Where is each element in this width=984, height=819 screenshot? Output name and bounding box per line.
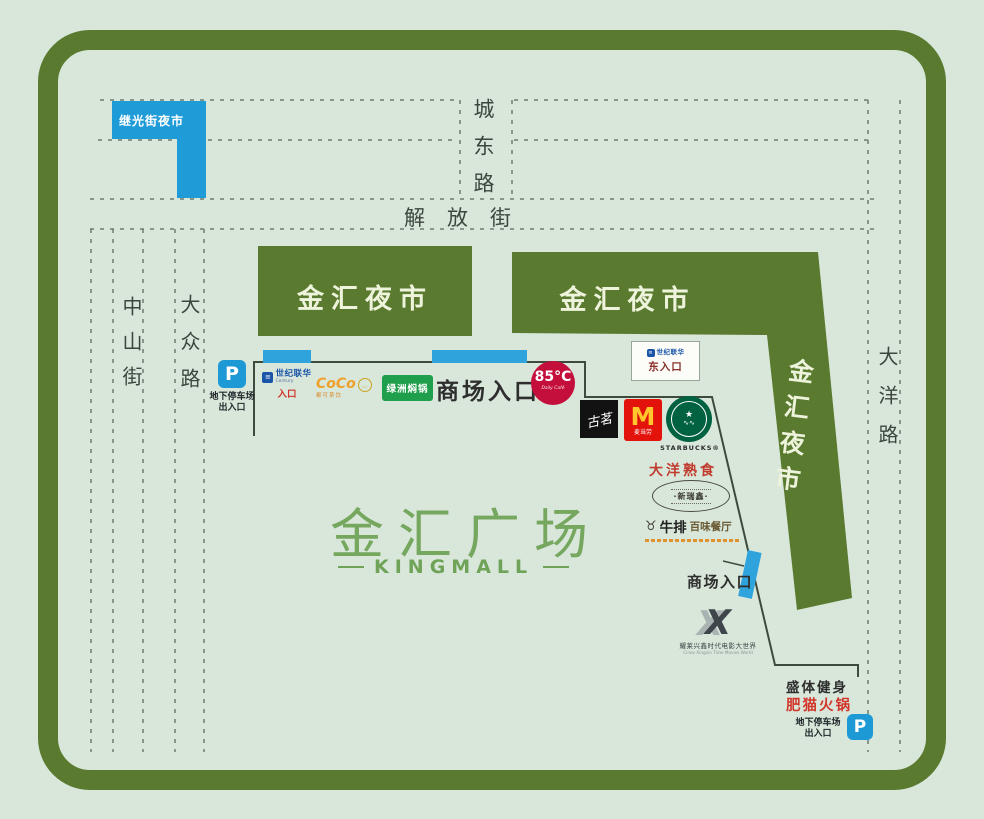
cinema-logo: X 耀莱兴鑫时代电影大世界 Cinex Xingxin Time Movies … (668, 606, 768, 655)
road-jiefang: 解放街 (404, 202, 533, 232)
hotpot-label: 肥猫火锅 (786, 694, 852, 715)
coco-mascot-icon: ◡ (358, 378, 372, 392)
parking-icon-west: P (218, 360, 246, 388)
parking-label-west: 地下停车场出入口 (198, 392, 266, 413)
mall-entrance-right-label: 商场入口 (687, 571, 753, 592)
fitness-label: 盛体健身 (786, 676, 848, 696)
road-dayang: 大洋路 (873, 346, 902, 463)
parking-label-south: 地下停车场出入口 (792, 718, 844, 739)
century-lianhua-icon: ≡ (262, 372, 273, 383)
east-box-century-icon: ≡ (647, 349, 655, 357)
road-zhongshan: 中山街 (117, 296, 146, 401)
coco-logo: CoCo 都可茶饮 ◡ (316, 378, 372, 399)
oval-top-ornament (671, 489, 711, 490)
guming-logo: 古茗 (580, 400, 618, 438)
mall-entrance-top-label: 商场入口 (436, 372, 540, 406)
starbucks-wordmark: STARBUCKS® (660, 444, 720, 452)
century-entrance-label: 入口 (277, 386, 296, 400)
steak-shield-icon: ♉ (645, 520, 657, 533)
mcdonalds-arches-icon: M (631, 404, 656, 429)
steak-restaurant-logo: ♉ 牛排 百味餐厅 (645, 516, 741, 542)
lvzhou-logo: 绿洲焖锅 (382, 375, 433, 401)
dayang-deli-logo: 大洋熟食 (649, 460, 717, 480)
parking-icon-south: P (847, 714, 873, 740)
oval-restaurant-logo: ·新瑞鑫· (652, 480, 730, 512)
cinema-x-icon: X (705, 606, 731, 640)
century-lianhua-logo: ≡ 世纪联华 Century 入口 (260, 370, 314, 400)
oval-bottom-ornament (671, 503, 711, 504)
mcdonalds-logo: M 麦当劳 (624, 399, 662, 441)
jiguang-night-market-label: 继光街夜市 (119, 112, 184, 129)
jinhui-right-label: 金汇夜市 (515, 278, 740, 317)
steak-tagline-bar (645, 539, 741, 542)
road-dazhong: 大众路 (175, 294, 204, 405)
mall-title-en: KINGMALL (374, 556, 533, 578)
starbucks-siren-icon: ★ ∿∿ (671, 401, 707, 437)
jinhui-left-label: 金汇夜市 (258, 277, 472, 316)
starbucks-logo: ★ ∿∿ (666, 396, 712, 442)
east-entrance-label: 东入口 (648, 359, 683, 374)
title-dash-right (543, 566, 569, 569)
title-dash-left (338, 566, 364, 569)
85c-logo: 85°C Daily Café (531, 361, 575, 405)
road-chengdong: 城东路 (468, 98, 498, 209)
east-entrance-box: ≡ 世纪联华 东入口 (631, 341, 700, 381)
mall-map: 城东路 解放街 中山街 大众路 大洋路 继光街夜市 金汇夜市 金汇夜市 金汇夜市… (0, 0, 984, 819)
mall-title-en-row: KINGMALL (338, 556, 569, 578)
